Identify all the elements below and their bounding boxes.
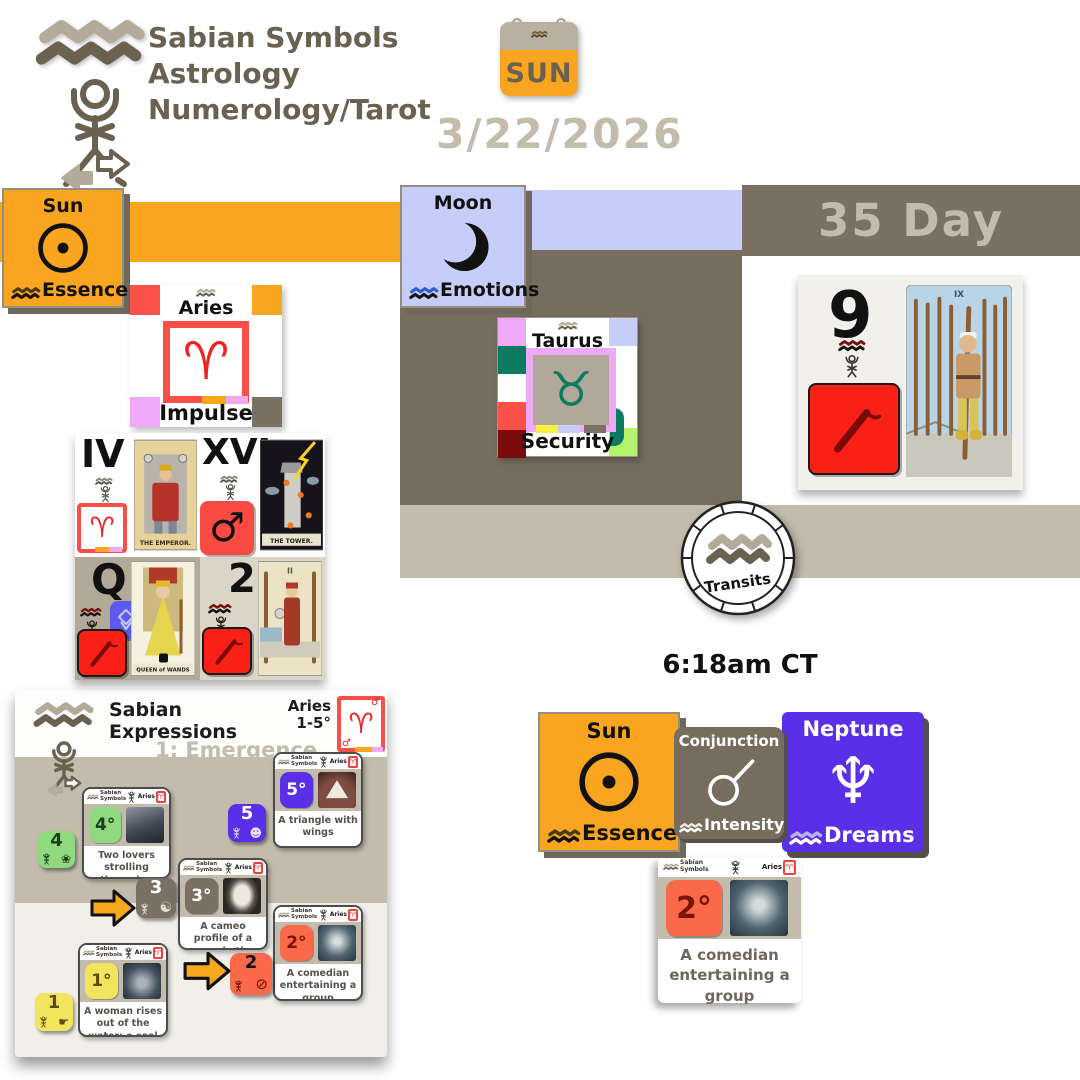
- sabian-stick-figure-logo: [41, 732, 87, 802]
- mini-sign-label: Aries: [330, 911, 347, 918]
- nine-card-numeral: IX: [954, 290, 964, 300]
- corner-square: [498, 402, 526, 430]
- mars-symbol-box: ♂: [200, 501, 254, 555]
- stick-figure-icon: [127, 791, 136, 803]
- arrow-right-icon: [90, 888, 136, 928]
- wand-icon: [210, 634, 244, 668]
- wand-suit-box: [808, 383, 900, 475]
- aries-symbol-box-small: ♈: [77, 503, 127, 553]
- tile-number: 4: [41, 832, 72, 850]
- sun-symbol-icon: [572, 745, 646, 819]
- aspect-keyword: Intensity: [704, 815, 784, 834]
- stick-figure-icon: [140, 903, 149, 915]
- mini-sign-label: Aries: [330, 758, 347, 765]
- strip-pink: [372, 747, 383, 752]
- calendar-waves-icon: [531, 30, 548, 39]
- stick-figure-icon: [124, 947, 133, 959]
- strip-pink: [109, 547, 122, 552]
- flower-icon: ❀: [61, 853, 71, 865]
- brand-title: Sabian Symbols Astrology Numerology/Taro…: [148, 20, 431, 127]
- neptune-keyword: Dreams: [824, 823, 915, 847]
- aries-mini-box: ♈: [153, 947, 163, 959]
- aquarius-waves-icon: [80, 607, 102, 618]
- moon-keyword: Emotions: [440, 279, 539, 301]
- sun-keyword: Essence: [42, 279, 128, 301]
- aquarius-waves-icon: [83, 950, 95, 956]
- tarot-quadrant-two: 2 II: [200, 557, 325, 680]
- mini-sign-label: Aries: [235, 864, 252, 871]
- aquarius-waves-icon: [278, 759, 290, 765]
- sun-card: Sun Essence: [2, 188, 124, 308]
- triangle-shape: [326, 780, 348, 798]
- strip-orange: [95, 547, 109, 552]
- symbol-thumbnail: [730, 880, 788, 936]
- brand-line-2: Astrology: [148, 56, 431, 92]
- strip-periwinkle: [558, 425, 580, 433]
- hand-idea-icon: ☛: [58, 1016, 69, 1028]
- aries-card: Aries ♈ Impulse: [130, 285, 282, 427]
- conjunction-symbol-icon: [700, 757, 758, 809]
- symbol-thumbnail: [123, 963, 161, 999]
- calendar-icon: SUN: [500, 22, 578, 98]
- nine-of-wands-card: IX: [906, 285, 1012, 477]
- expressions-sign: Aries: [273, 698, 331, 715]
- numerology-panel: 9 IX: [798, 275, 1023, 490]
- neptune-card: Neptune ♆ Dreams: [782, 712, 924, 852]
- symbol-thumbnail: [126, 807, 164, 843]
- queen-of-wands-card: QUEEN of WANDS: [131, 559, 195, 678]
- aquarius-waves-icon: [183, 865, 195, 871]
- sun-keyword: Essence: [582, 821, 677, 845]
- conjunction-card: Conjunction Intensity: [674, 727, 784, 839]
- stick-figure-icon: [730, 860, 741, 875]
- degree-card-1: SabianSymbols Aries♈ 1° A woman rises ou…: [78, 943, 168, 1037]
- aries-symbol-box-header: ♈ ♂ ♂: [337, 696, 385, 752]
- tarot-quadrant-emperor: IV ♈ THE EMPEROR.: [75, 433, 200, 557]
- day-banner: 35 Day: [742, 185, 1080, 256]
- aquarius-waves-icon: [547, 828, 581, 845]
- strip-orange: [355, 747, 372, 752]
- day-banner-label: 35 Day: [818, 194, 1004, 247]
- aquarius-waves-icon: [11, 286, 41, 301]
- mini-brand-line2: Symbols: [100, 797, 126, 803]
- tile-number: 1: [38, 994, 70, 1012]
- degree-tile-1: 1 ☛: [35, 993, 73, 1031]
- aspect-sun-card: Sun Essence: [538, 712, 680, 852]
- aries-glyph: ♈: [183, 336, 230, 388]
- symbol-thumbnail: [318, 772, 356, 808]
- aquarius-waves-icon: [409, 286, 439, 301]
- mini-brand-line2: Symbols: [196, 868, 222, 874]
- moon-card: Moon Emotions: [400, 185, 526, 308]
- aquarius-waves-icon: [278, 912, 290, 918]
- degree-tile-4: 4 ❀: [38, 831, 75, 868]
- taurus-symbol-box: ♉: [526, 348, 616, 432]
- degree-square: 2°: [666, 880, 722, 936]
- tarot-numeral: IV: [81, 435, 125, 473]
- wand-suit-box: [202, 627, 252, 675]
- aquarius-waves-icon: [789, 830, 823, 847]
- degree-tile-2: 2 ⊘: [230, 953, 272, 995]
- aries-mini-box: ♈: [253, 862, 263, 874]
- strip-olive: [584, 425, 606, 433]
- stick-figure-icon: [99, 485, 112, 503]
- wand-icon: [825, 400, 883, 458]
- aquarius-waves-logo: [35, 16, 147, 72]
- strip-orange: [202, 396, 226, 404]
- mini-brand-line2: Symbols: [291, 915, 317, 921]
- aquarius-waves-icon: [663, 863, 679, 871]
- tile-number: 3: [139, 879, 173, 897]
- tarot-quadrant-tower: XVI ♂ THE TOWER.: [200, 433, 325, 557]
- degree-caption: A comedian entertaining a group: [658, 939, 801, 1012]
- two-card-numeral: II: [287, 567, 293, 576]
- degree-caption: A comedian entertaining a group: [275, 964, 361, 1001]
- stick-figure-icon: [224, 483, 237, 501]
- neptune-glyph: ♆: [824, 750, 881, 814]
- calendar-weekday: SUN: [500, 50, 578, 96]
- tile-number: 5: [231, 805, 263, 823]
- degree-square: 1°: [85, 963, 118, 999]
- stick-figure-icon: [234, 980, 243, 992]
- mini-sign-label: Aries: [762, 863, 782, 871]
- symbol-thumbnail: [318, 925, 356, 961]
- aspect-degree-card: Sabian Symbols Aries ♈ 2° A comedian ent…: [658, 857, 801, 1003]
- tower-card-label: THE TOWER.: [270, 538, 313, 545]
- degree-caption: A woman rises out of the water; a seal r…: [80, 1002, 166, 1037]
- degree-card-3: SabianSymbols Aries♈ 3° A cameo profile …: [178, 858, 268, 950]
- degree-square: 3°: [185, 878, 218, 914]
- aries-title: Aries: [130, 297, 282, 319]
- stick-figure-icon: [319, 756, 328, 768]
- sun-card-title: Sun: [586, 719, 631, 743]
- degree-caption: A cameo profile of a man, in the outline…: [180, 917, 266, 950]
- stick-figure-icon: [39, 1016, 48, 1028]
- arrow-right-icon: [183, 950, 231, 992]
- date-label: 3/22/2026: [436, 110, 684, 158]
- queen-card-label: QUEEN of WANDS: [136, 668, 189, 674]
- degree-card-4: SabianSymbols Aries♈ 4° Two lovers strol…: [82, 787, 171, 879]
- mars-glyph-small: ♂: [371, 698, 380, 708]
- degree-card-5: SabianSymbols Aries♈ 5° A triangle with …: [273, 752, 363, 848]
- wand-suit-box: [77, 629, 127, 677]
- tarot-numeral: Q: [91, 559, 127, 601]
- sabian-stick-figure-logo: [48, 74, 142, 188]
- moon-symbol-icon: [432, 216, 494, 278]
- mini-brand-line2: Symbols: [96, 953, 122, 959]
- sun-symbol-icon: [32, 217, 94, 279]
- tarot-numeral: 2: [228, 559, 256, 599]
- strip-pink: [226, 396, 248, 404]
- tile-number: 2: [233, 954, 269, 972]
- yin-yang-icon: ☯: [159, 901, 172, 915]
- degree-tile-5: 5 ☻: [228, 804, 266, 842]
- no-slash-icon: ⊘: [255, 977, 268, 992]
- aries-mini-box: ♈: [156, 791, 166, 803]
- aries-glyph: ♈: [89, 514, 114, 542]
- taurus-title: Taurus: [498, 330, 637, 352]
- aquarius-waves-logo: [33, 700, 95, 731]
- mini-brand-line2: Symbols: [291, 762, 317, 768]
- taurus-glyph: ♉: [549, 366, 592, 414]
- mind-icon: ☻: [249, 827, 262, 839]
- degree-square: 5°: [280, 772, 313, 808]
- expressions-title-line1: Sabian: [109, 700, 237, 722]
- degree-caption: A triangle with wings: [275, 811, 361, 844]
- degree-square: 2°: [280, 925, 313, 961]
- neptune-title: Neptune: [802, 717, 903, 741]
- stick-figure-icon: [42, 853, 51, 865]
- moon-card-title: Moon: [434, 192, 493, 214]
- symbol-thumbnail: [223, 878, 261, 914]
- brand-line-3: Numerology/Tarot: [148, 92, 431, 128]
- taurus-card: Taurus ♉ Security: [497, 317, 638, 457]
- tarot-grid: IV ♈ THE EMPEROR. XVI ♂: [75, 433, 325, 680]
- expressions-range: 1-5°: [273, 715, 331, 732]
- sun-card-title: Sun: [43, 195, 84, 217]
- transits-badge: Transits: [678, 498, 798, 618]
- emperor-card: THE EMPEROR.: [134, 436, 197, 554]
- degree-card-2: SabianSymbols Aries♈ 2° A comedian enter…: [273, 905, 363, 1001]
- stick-figure-icon: [224, 862, 233, 874]
- aspect-title: Conjunction: [679, 732, 780, 750]
- degree-tile-3: 3 ☯: [136, 878, 176, 918]
- tower-card: THE TOWER.: [260, 436, 323, 554]
- two-of-wands-card: II: [258, 559, 322, 678]
- mars-glyph-small: ♂: [342, 739, 351, 749]
- tarot-quadrant-queen: Q QUEEN of WANDS: [75, 557, 200, 680]
- aquarius-waves-icon: [87, 794, 99, 800]
- brand-line-1: Sabian Symbols: [148, 20, 431, 56]
- degree-square: 4°: [89, 807, 121, 843]
- aries-mini-box: ♈: [348, 909, 358, 921]
- stick-figure-icon: [319, 909, 328, 921]
- emperor-card-label: THE EMPEROR.: [140, 540, 191, 547]
- stick-figure-icon: [232, 827, 241, 839]
- aquarius-waves-icon: [208, 603, 232, 615]
- calendar-top: [500, 22, 578, 50]
- aries-mini-box: ♈: [348, 756, 358, 768]
- mars-glyph: ♂: [209, 508, 245, 548]
- time-label: 6:18am CT: [600, 650, 880, 680]
- aries-keyword: Impulse: [130, 401, 282, 425]
- stick-figure-icon: [843, 353, 861, 379]
- expressions-panel: Sabian Expressions 1: Emergence Aries 1-…: [15, 690, 387, 1057]
- strip-yellow: [536, 425, 558, 433]
- mini-sign-label: Aries: [135, 949, 152, 956]
- aries-mini-box: ♈: [783, 860, 796, 875]
- aquarius-waves-icon: [838, 339, 866, 353]
- mini-brand-line2: Symbols: [680, 867, 709, 874]
- aries-glyph: ♈: [348, 710, 373, 738]
- mini-sign-label: Aries: [138, 793, 155, 800]
- wand-icon: [85, 636, 119, 670]
- aquarius-waves-icon: [679, 822, 703, 834]
- degree-caption: Two lovers strolling through a secluded …: [84, 846, 169, 879]
- aries-symbol-box: ♈: [163, 321, 249, 403]
